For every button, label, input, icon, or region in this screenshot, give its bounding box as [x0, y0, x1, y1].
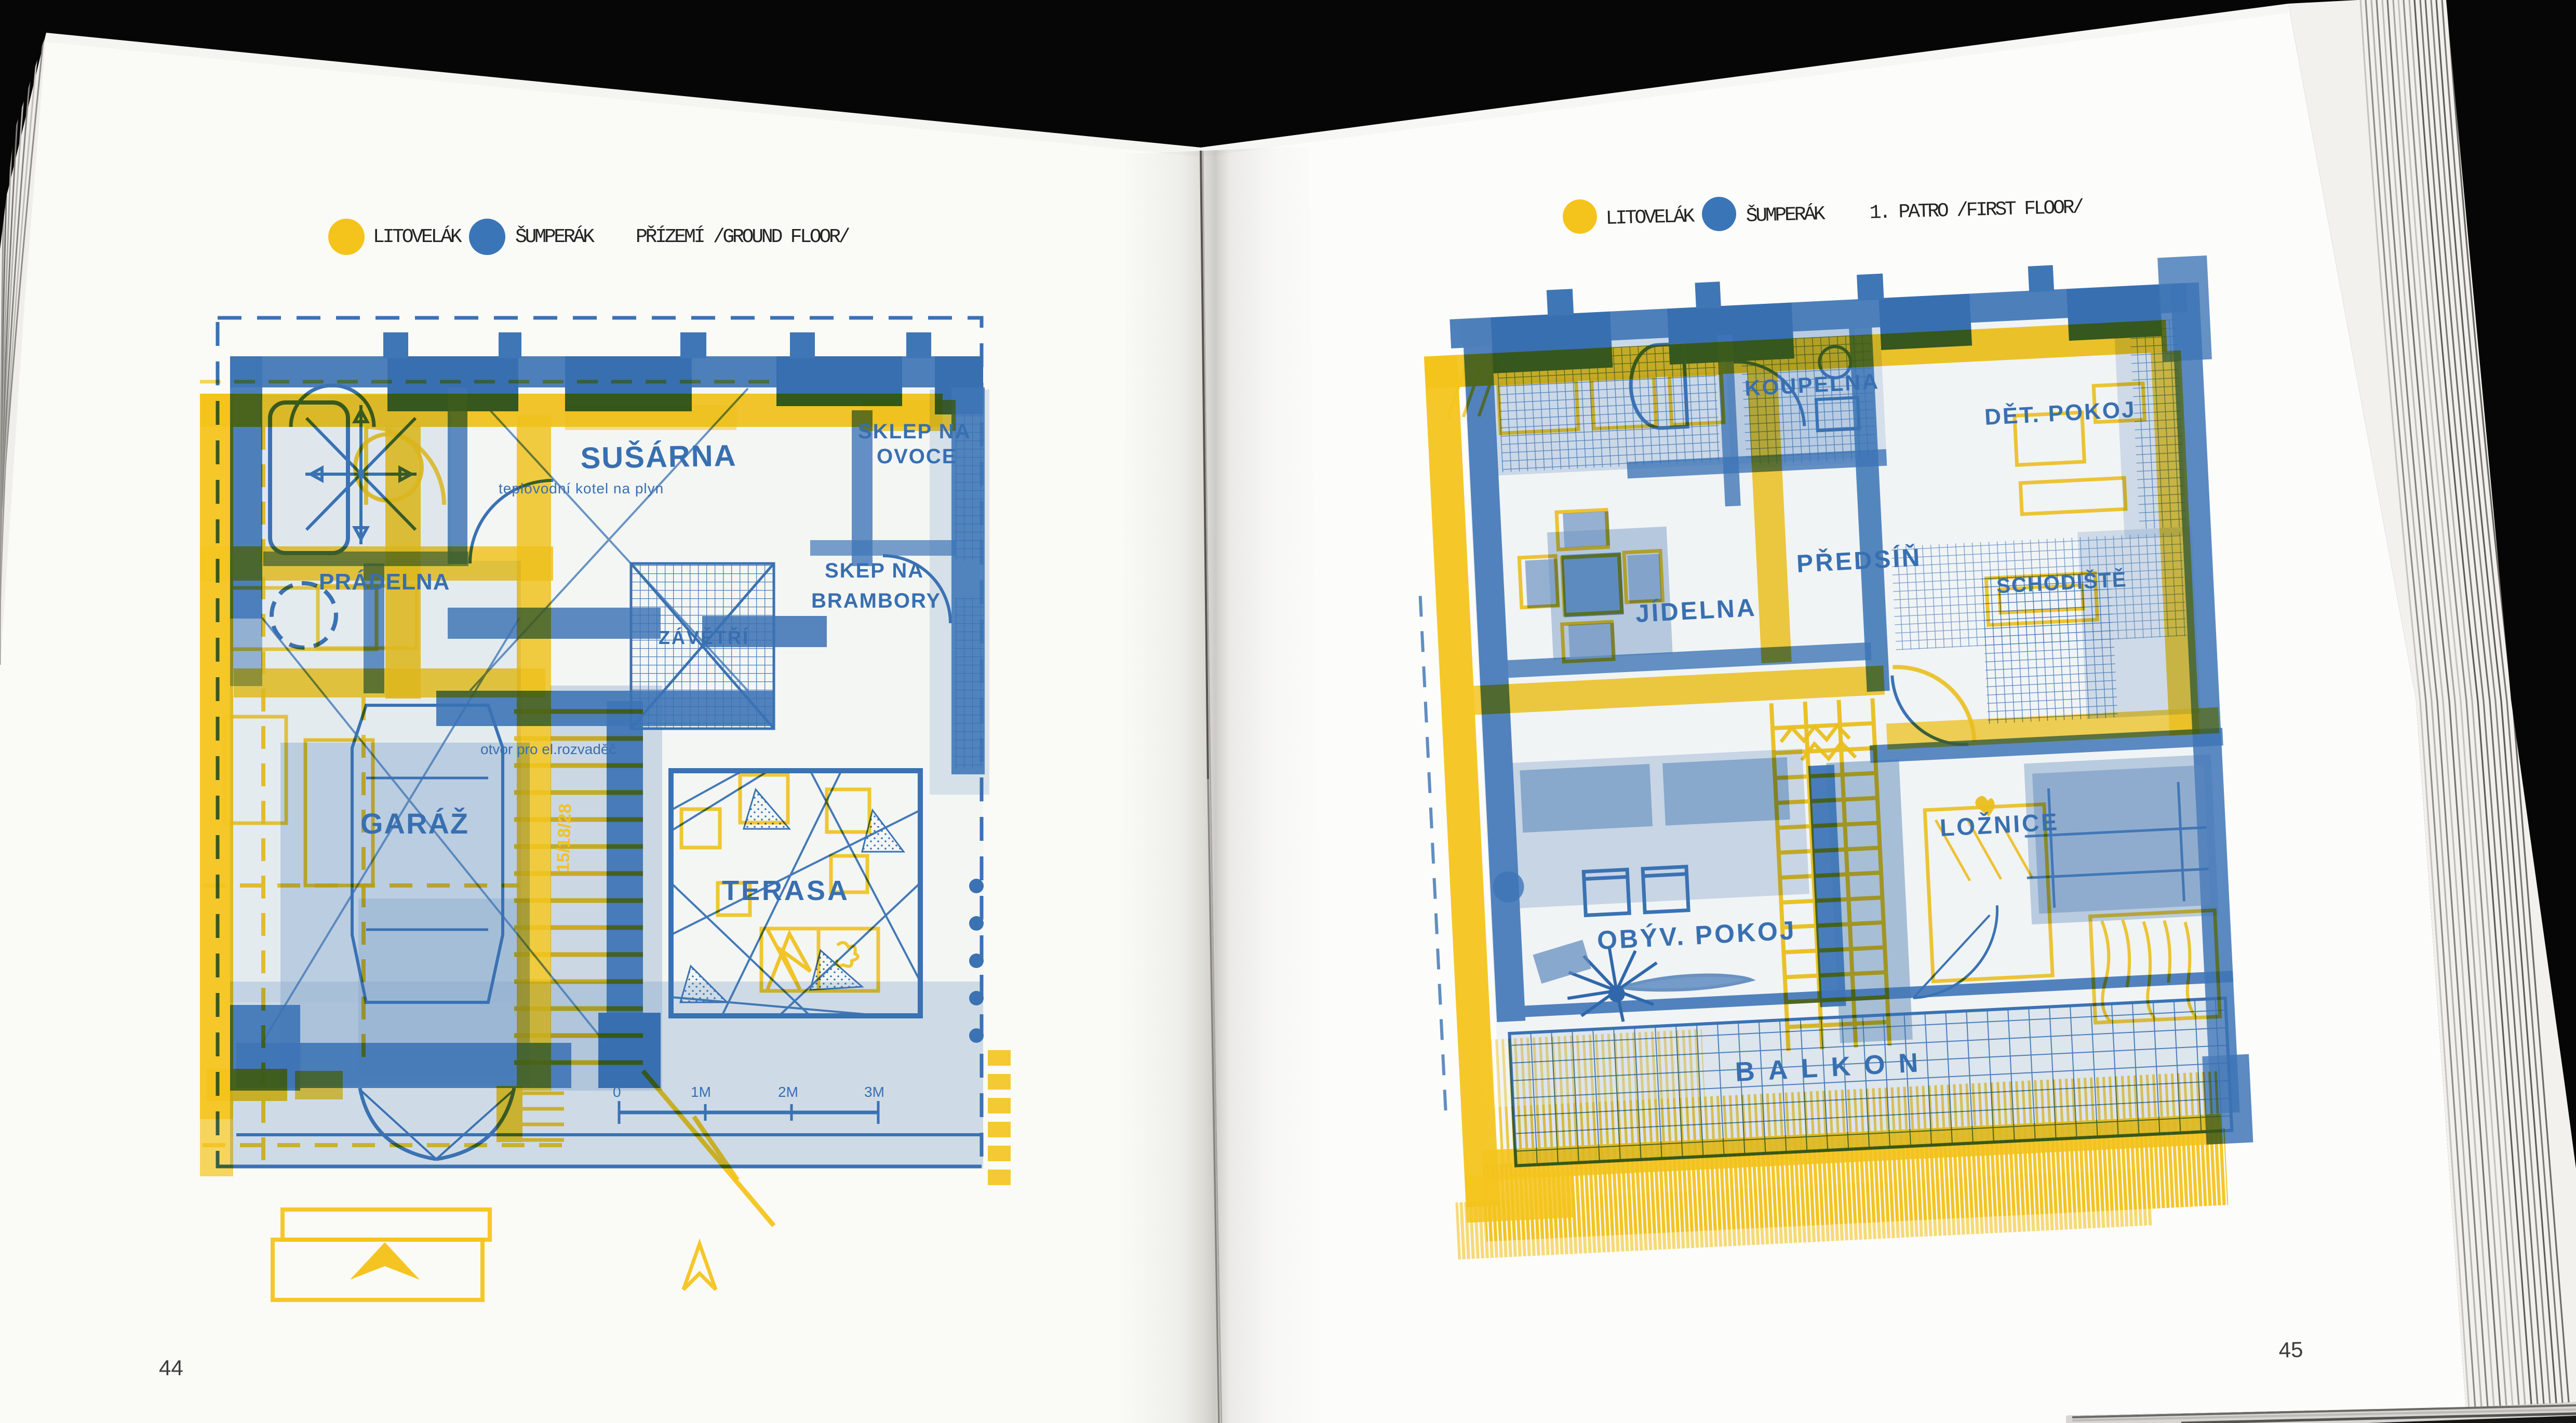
svg-text:SKLEP NA: SKLEP NA [858, 420, 971, 443]
svg-text:15/18/28: 15/18/28 [553, 803, 575, 873]
svg-text:ZÁVĚTŘÍ: ZÁVĚTŘÍ [659, 626, 749, 648]
svg-text:TERASA: TERASA [722, 875, 850, 906]
svg-text:1M: 1M [691, 1084, 711, 1100]
svg-text:44: 44 [159, 1355, 183, 1380]
svg-text:SUŠÁRNA: SUŠÁRNA [580, 439, 737, 475]
svg-text:OVOCE: OVOCE [877, 445, 957, 468]
svg-text:LITOVELÁK: LITOVELÁK [373, 225, 462, 248]
svg-text:0: 0 [613, 1084, 621, 1100]
svg-text:LITOVELÁK: LITOVELÁK [1605, 205, 1695, 230]
svg-text:2M: 2M [778, 1084, 798, 1100]
svg-text:3M: 3M [864, 1084, 884, 1100]
svg-text:teplovodní kotel na plyn: teplovodní kotel na plyn [499, 480, 664, 496]
svg-text:BRAMBORY: BRAMBORY [811, 589, 941, 612]
svg-text:SKEP NA: SKEP NA [825, 559, 924, 582]
svg-text:ŠUMPERÁK: ŠUMPERÁK [515, 225, 595, 248]
svg-text:45: 45 [2278, 1337, 2303, 1362]
svg-text:ŠUMPERÁK: ŠUMPERÁK [1746, 202, 1826, 227]
svg-text:PŘÍZEMÍ /GROUND FLOOR/: PŘÍZEMÍ /GROUND FLOOR/ [636, 225, 850, 248]
svg-text:GARÁŽ: GARÁŽ [360, 807, 469, 840]
svg-text:PRÁDELNA: PRÁDELNA [319, 569, 450, 595]
svg-text:otvor pro el.rozvaděč: otvor pro el.rozvaděč [480, 741, 616, 757]
